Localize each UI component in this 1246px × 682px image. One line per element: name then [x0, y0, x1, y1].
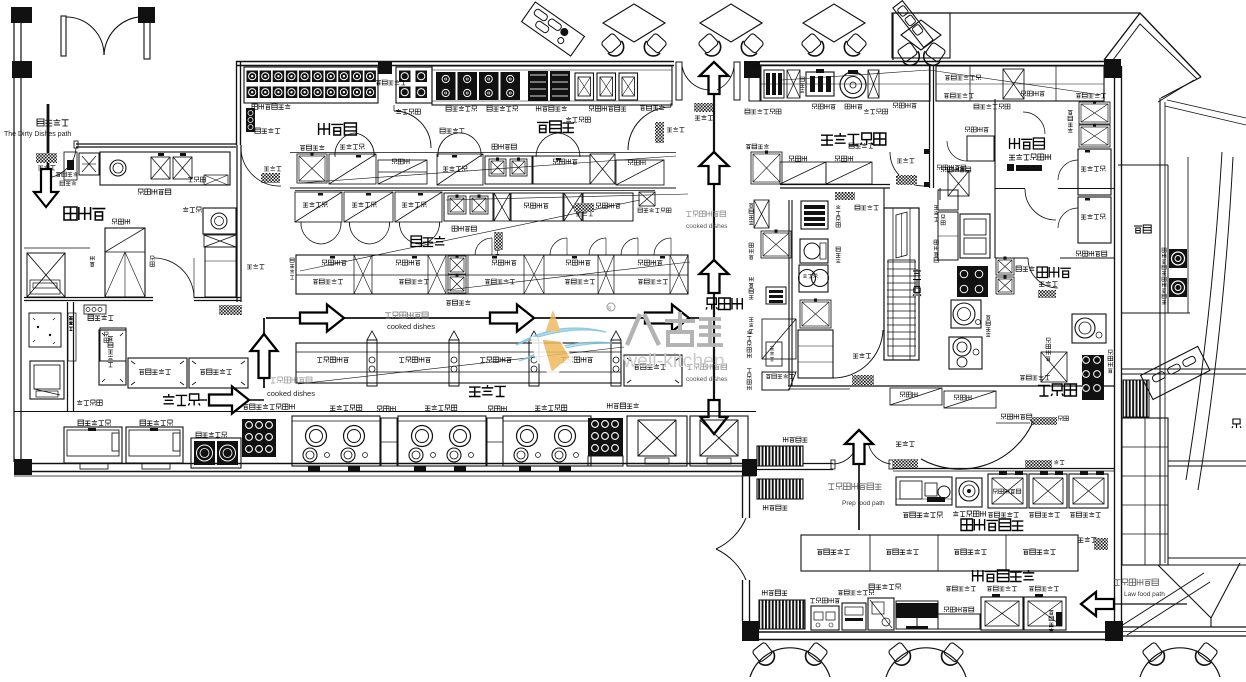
- svg-text:cooked dishes: cooked dishes: [686, 223, 728, 230]
- svg-text:Law food path: Law food path: [1124, 591, 1165, 598]
- svg-text:well-kitchen: well-kitchen: [622, 350, 725, 372]
- svg-text:Prep food path: Prep food path: [842, 500, 885, 507]
- svg-text:The Dirty Dishes path: The Dirty Dishes path: [4, 131, 71, 138]
- svg-text:cooked dishes: cooked dishes: [686, 376, 728, 383]
- svg-text:cooked dishes: cooked dishes: [267, 389, 315, 398]
- svg-text:R: R: [608, 306, 612, 312]
- svg-text:cooked dishes: cooked dishes: [387, 322, 435, 331]
